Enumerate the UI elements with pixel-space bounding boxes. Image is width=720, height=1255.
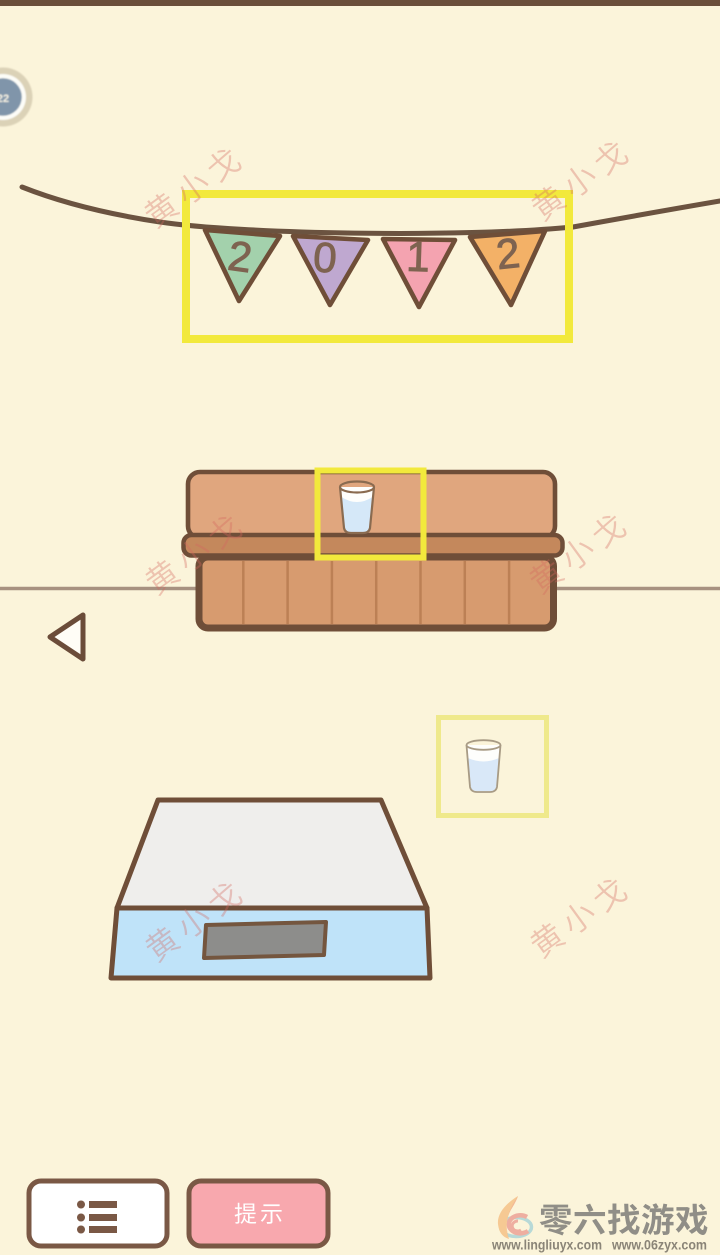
svg-text:1: 1: [406, 233, 431, 281]
svg-text:22: 22: [0, 93, 9, 105]
svg-text:www.lingliuyx.com: www.lingliuyx.com: [491, 1238, 602, 1253]
svg-text:0: 0: [312, 233, 339, 282]
svg-text:2: 2: [494, 229, 522, 278]
svg-text:www.06zyx.com: www.06zyx.com: [611, 1238, 707, 1253]
